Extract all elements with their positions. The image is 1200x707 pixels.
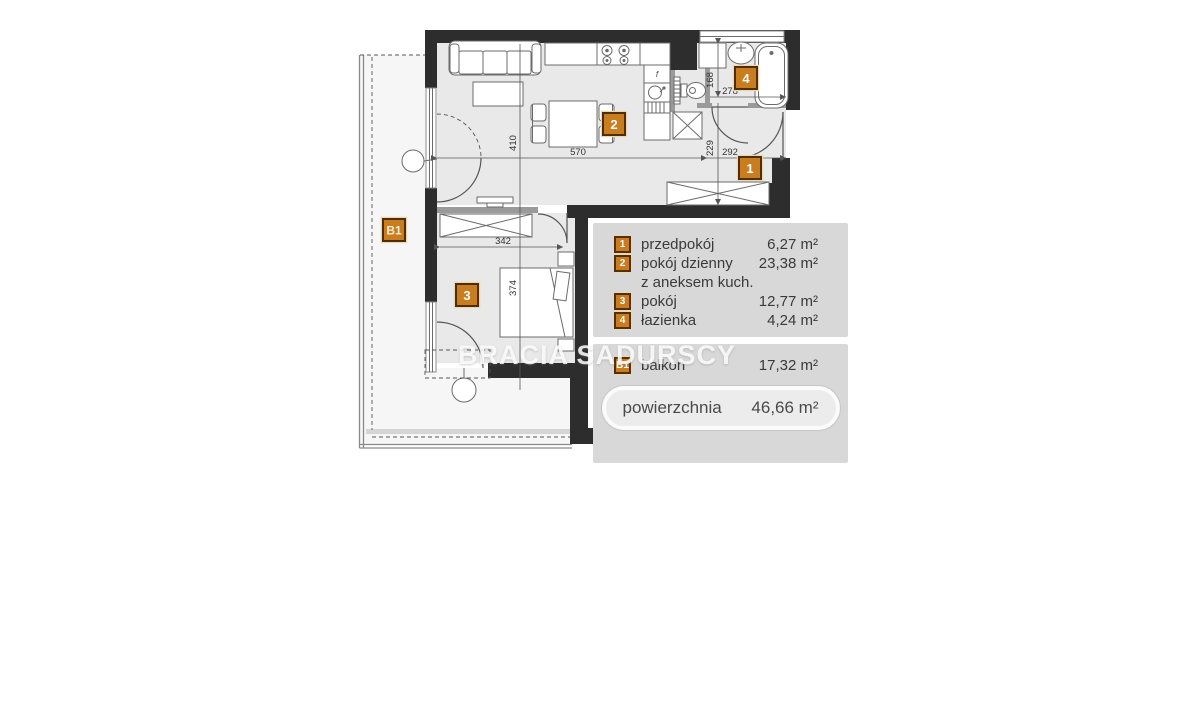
room-badge-living: 2 — [602, 112, 627, 137]
legend-area: 12,77 m² — [759, 293, 818, 310]
living-balcony-door-frame — [426, 88, 436, 188]
badge-hall-number: 1 — [746, 161, 753, 176]
room-badge-bedroom: 3 — [455, 283, 480, 308]
legend-label: z aneksem kuch. — [641, 274, 754, 291]
kitchen-counter-stove — [545, 43, 670, 65]
sofa — [449, 41, 541, 75]
kitchen-sink — [644, 83, 670, 102]
dim-bedroom-width: 342 — [495, 236, 511, 247]
legend-balcony-panel: B1 balkon 17,32 m² powierzchnia 46,66 m² — [593, 344, 848, 463]
legend-row-balcony: B1 balkon 17,32 m² — [593, 356, 848, 375]
dim-living-width: 570 — [570, 147, 586, 158]
dim-hall-height: 229 — [705, 140, 716, 156]
dim-bedroom-height: 374 — [508, 280, 519, 296]
legend-rooms-panel: 1 przedpokój 6,27 m² 2 pokój dzienny 23,… — [593, 223, 848, 337]
tv — [477, 197, 513, 207]
badge-bedroom-number: 3 — [463, 288, 470, 303]
legend-area: 6,27 m² — [767, 236, 818, 253]
legend-area: 17,32 m² — [759, 357, 818, 374]
dim-bath-height: 168 — [705, 72, 716, 88]
legend-label: przedpokój — [641, 236, 714, 253]
total-area-value: 46,66 m² — [751, 398, 818, 418]
legend-row-bath: 4 łazienka 4,24 m² — [593, 311, 848, 330]
hall-wardrobe-small — [673, 112, 702, 139]
bedroom-wardrobe — [440, 214, 532, 237]
washbasin — [728, 42, 754, 64]
legend-badge-living: 2 — [614, 255, 631, 272]
kitchen-fridge: f — [644, 65, 670, 83]
badge-bath-number: 4 — [742, 71, 750, 86]
legend-row-hall: 1 przedpokój 6,27 m² — [593, 235, 848, 254]
legend-area: 4,24 m² — [767, 312, 818, 329]
total-area-box: powierzchnia 46,66 m² — [602, 386, 840, 430]
legend-label: pokój dzienny — [641, 255, 733, 272]
room-badge-bath: 4 — [734, 66, 759, 91]
bathroom-window — [700, 31, 784, 42]
legend-row-living-cont: z aneksem kuch. — [593, 273, 848, 292]
coffee-table — [473, 82, 523, 106]
toilet — [681, 83, 706, 99]
legend-label: pokój — [641, 293, 677, 310]
legend-badge-bath: 4 — [614, 312, 631, 329]
bathtub — [755, 43, 788, 108]
kitchen-cabinet — [644, 113, 670, 140]
total-area-label: powierzchnia — [623, 398, 722, 418]
badge-balcony-number: B1 — [386, 224, 402, 238]
legend-row-bedroom: 3 pokój 12,77 m² — [593, 292, 848, 311]
legend-badge-hall: 1 — [614, 236, 631, 253]
floorplan-page: f — [0, 0, 1200, 707]
badge-living-number: 2 — [610, 117, 617, 132]
plumbing-wall-hatch — [674, 77, 680, 104]
legend-area: 23,38 m² — [759, 255, 818, 272]
dim-hall-width: 292 — [722, 147, 738, 158]
room-badge-balcony: B1 — [382, 218, 407, 243]
legend-label: balkon — [641, 357, 685, 374]
room-badge-hall: 1 — [738, 156, 763, 181]
legend-label: łazienka — [641, 312, 696, 329]
kitchen-drainer — [644, 102, 670, 113]
legend-badge-balcony: B1 — [614, 357, 631, 374]
legend-row-living: 2 pokój dzienny 23,38 m² — [593, 254, 848, 273]
washing-machine — [699, 43, 726, 68]
nightstand-bottom — [558, 339, 574, 351]
dim-living-height: 410 — [508, 135, 519, 151]
nightstand-top — [558, 252, 574, 266]
legend-badge-bedroom: 3 — [614, 293, 631, 310]
bedroom-balcony-door-frame — [426, 302, 436, 372]
bed — [500, 268, 573, 337]
